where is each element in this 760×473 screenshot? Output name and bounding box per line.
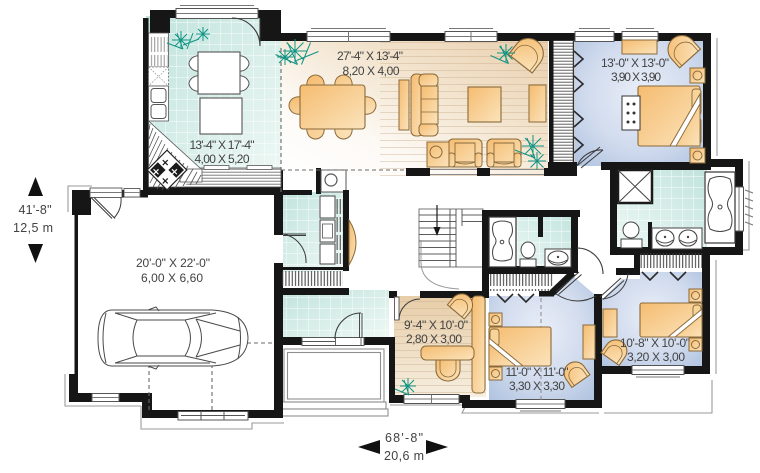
svg-text:9'-4" X 10'-0": 9'-4" X 10'-0" [404,318,468,332]
svg-text:3,30 X 3,30: 3,30 X 3,30 [509,379,565,393]
svg-text:20,6 m: 20,6 m [384,449,424,463]
svg-text:8,20 X 4,00: 8,20 X 4,00 [343,64,400,78]
svg-text:41'-8": 41'-8" [19,203,52,217]
svg-text:4,00 X 5,20: 4,00 X 5,20 [195,152,250,166]
svg-text:11'-0" X 11'-0": 11'-0" X 11'-0" [506,365,569,379]
svg-text:6,00 X 6,60: 6,00 X 6,60 [141,271,203,285]
svg-text:3,90 X 3,90: 3,90 X 3,90 [611,70,661,84]
svg-text:3,20 X 3,00: 3,20 X 3,00 [627,350,685,364]
svg-text:13'-4" X 17'-4": 13'-4" X 17'-4" [190,138,255,152]
svg-text:27'-4" X 13'-4": 27'-4" X 13'-4" [337,49,403,63]
svg-text:20'-0" X 22'-0": 20'-0" X 22'-0" [136,256,210,270]
svg-text:13'-0" X 13'-0": 13'-0" X 13'-0" [601,56,669,70]
svg-text:68'-8": 68'-8" [385,431,423,445]
svg-text:12,5 m: 12,5 m [13,221,53,235]
svg-text:2,80 X 3,00: 2,80 X 3,00 [406,332,462,346]
svg-text:10'-8" X 10'-0": 10'-8" X 10'-0" [620,336,690,350]
